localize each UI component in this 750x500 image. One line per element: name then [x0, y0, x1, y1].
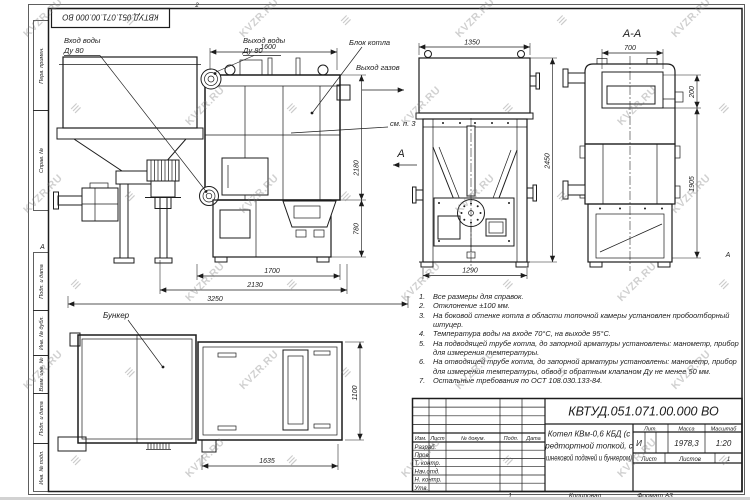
- rev-col-list: Лист: [429, 436, 445, 442]
- scale-label: Масштаб: [711, 426, 738, 432]
- feeder-motor: [82, 188, 118, 221]
- callout-see-note-3: см. п. 3: [390, 119, 416, 128]
- note-number: 6.: [417, 357, 433, 376]
- product-name-line2: редтортной топкой, с: [544, 442, 632, 451]
- callout-boiler-block: Блок котла: [349, 38, 390, 47]
- callout-water-outlet: Выход воды: [243, 36, 286, 45]
- dim-1350: 1350: [464, 40, 480, 47]
- note-text: На отводящей трубе котла, до запорной ар…: [433, 357, 741, 376]
- dim-780: 780: [354, 223, 361, 235]
- sheet-label: Лист: [640, 457, 656, 463]
- section-cut-label: А: [396, 148, 404, 160]
- frame-label-podp-data-2: Подп. и дата: [39, 401, 45, 435]
- product-name-line3: шнековой подачей и бункером): [546, 454, 632, 463]
- notes-list: 1.Все размеры для справок. 2.Отклонение …: [417, 292, 741, 385]
- callout-water-inlet-dn: Ду 80: [63, 46, 84, 55]
- note-number: 2.: [417, 301, 433, 310]
- scale-value: 1:20: [716, 439, 732, 448]
- note-item: 4.Температура воды на входе 70°С, на вых…: [417, 329, 741, 338]
- note-item: 3.На боковой стенке котла в области топо…: [417, 311, 741, 330]
- frame-zone-left: А: [39, 244, 45, 251]
- frame-label-podp-data-1: Подп. и дата: [39, 264, 45, 298]
- product-name-line1: Котел КВм-0,6 КБД (с: [548, 430, 631, 439]
- note-item: 5.На подводящей трубе котла, до запорной…: [417, 339, 741, 358]
- sig-utv: Утв.: [414, 486, 429, 492]
- doc-number: КВТУД.051.071.00.000 ВО: [568, 405, 719, 419]
- drawing-sheet: Перв. примен. Справ. № Подп. и дата Инв.…: [0, 0, 750, 500]
- callout-water-outlet-dn: Ду 80: [242, 46, 263, 55]
- frame-label-perv-primen: Перв. примен.: [39, 47, 45, 84]
- mass-label: Масса: [678, 426, 694, 432]
- water-outlet-flange: [201, 69, 221, 89]
- note-text: На боковой стенке котла в области топочн…: [433, 311, 741, 330]
- drawing-canvas: Перв. примен. Справ. № Подп. и дата Инв.…: [0, 0, 750, 500]
- sheets-label: Листов: [678, 457, 701, 463]
- callout-gas-outlet: Выход газов: [356, 63, 400, 72]
- section-view-title: А-А: [622, 28, 641, 40]
- note-item: 1.Все размеры для справок.: [417, 292, 741, 301]
- view-plan: [58, 333, 342, 452]
- note-text: Отклонение ±100 мм.: [433, 301, 741, 310]
- note-text: Все размеры для справок.: [433, 292, 741, 301]
- note-item: 2.Отклонение ±100 мм.: [417, 301, 741, 310]
- frame-zone-right: А: [725, 252, 731, 259]
- view-side: [54, 57, 351, 263]
- dim-1600: 1600: [260, 44, 276, 51]
- rev-col-dokum: № докум.: [461, 436, 485, 442]
- sig-n-kontr: Н. контр.: [415, 478, 442, 484]
- mass-value: 1978,3: [674, 439, 699, 448]
- title-block: Изм. Лист № докум. Подп. Дата Разраб. Пр…: [413, 399, 743, 500]
- frame-top-mark: 2: [194, 3, 199, 9]
- note-text: Температура воды на входе 70°С, на выход…: [433, 329, 741, 338]
- sig-prov: Пров.: [415, 453, 431, 459]
- note-number: 3.: [417, 311, 433, 330]
- top-stamp-doc-number: КВТУД.051.071.00.000 ВО: [62, 13, 158, 22]
- dim-2450: 2450: [545, 153, 552, 170]
- sheet-frame: Перв. примен. Справ. № Подп. и дата Инв.…: [29, 3, 745, 495]
- dim-700: 700: [624, 45, 636, 52]
- sig-razrab: Разраб.: [415, 445, 437, 451]
- dim-1700: 1700: [264, 268, 280, 275]
- dim-1905: 1905: [689, 176, 696, 192]
- retort-fins: [147, 160, 179, 181]
- lit-value: И: [636, 439, 642, 448]
- rev-col-izm: Изм.: [415, 436, 427, 442]
- dim-1290: 1290: [462, 268, 478, 275]
- dim-200: 200: [689, 86, 696, 99]
- sheets-value: 1: [727, 457, 730, 463]
- frame-label-vzam-inv: Взам. инв. №: [39, 357, 45, 391]
- sig-nach-otd: Нач.отд.: [415, 470, 440, 476]
- lit-label: Лит.: [643, 426, 657, 432]
- frame-label-inv-podl: Инв. № подл.: [39, 450, 45, 484]
- note-text: Остальные требования по ОСТ 108.030.133-…: [433, 376, 741, 385]
- note-text: На подводящей трубе котла, до запорной а…: [433, 339, 741, 358]
- rev-col-data: Дата: [525, 436, 541, 442]
- note-number: 7.: [417, 376, 433, 385]
- note-number: 4.: [417, 329, 433, 338]
- rev-col-podp: Подп.: [504, 436, 519, 442]
- note-number: 1.: [417, 292, 433, 301]
- dim-3250: 3250: [207, 296, 223, 303]
- dim-1635: 1635: [259, 458, 275, 465]
- frame-label-sprav-no: Справ. №: [39, 148, 45, 173]
- water-inlet-flange: [200, 187, 219, 206]
- gas-outlet-stub: [337, 85, 350, 100]
- note-number: 5.: [417, 339, 433, 358]
- dim-2130: 2130: [246, 282, 263, 289]
- note-item: 6.На отводящей трубе котла, до запорной …: [417, 357, 741, 376]
- callout-water-inlet: Вход воды: [64, 36, 101, 45]
- frame-label-inv-dubl: Инв. № дубл.: [39, 316, 45, 350]
- dim-1100: 1100: [352, 385, 359, 400]
- view-section: [563, 56, 683, 271]
- note-item: 7.Остальные требования по ОСТ 108.030.13…: [417, 376, 741, 385]
- sig-t-kontr: Т. контр.: [415, 461, 441, 467]
- dim-2180: 2180: [354, 160, 361, 177]
- view-front: [413, 51, 540, 271]
- callout-bunker: Бункер: [103, 311, 130, 320]
